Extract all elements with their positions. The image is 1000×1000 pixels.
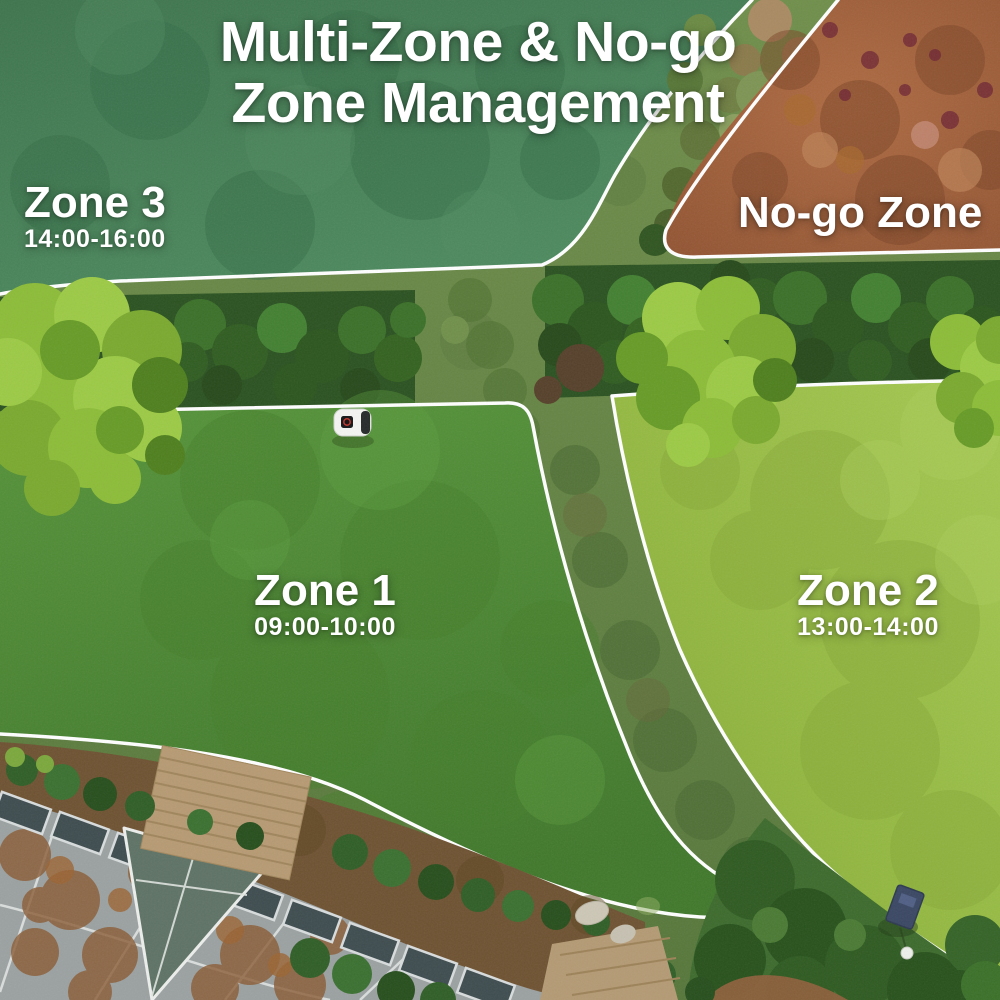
zone3-schedule: 14:00-16:00 (24, 226, 166, 253)
scene-graphic (0, 0, 1000, 1000)
zone1-schedule: 09:00-10:00 (175, 614, 475, 641)
nogo-name: No-go Zone (738, 190, 982, 236)
zone2-name: Zone 2 (716, 568, 1000, 614)
zone3-label: Zone 3 14:00-16:00 (24, 180, 166, 253)
title-line-1: Multi-Zone & No-go (0, 12, 956, 73)
zone2-label: Zone 2 13:00-14:00 (716, 568, 1000, 641)
zone2-schedule: 13:00-14:00 (716, 614, 1000, 641)
photo-grain (0, 0, 1000, 1000)
zone3-name: Zone 3 (24, 180, 166, 226)
zone1-name: Zone 1 (175, 568, 475, 614)
zone1-label: Zone 1 09:00-10:00 (175, 568, 475, 641)
title-line-2: Zone Management (0, 73, 956, 134)
nogo-label: No-go Zone (738, 190, 982, 236)
aerial-lawn-photo: Multi-Zone & No-go Zone Management Zone … (0, 0, 1000, 1000)
page-title: Multi-Zone & No-go Zone Management (0, 12, 956, 134)
